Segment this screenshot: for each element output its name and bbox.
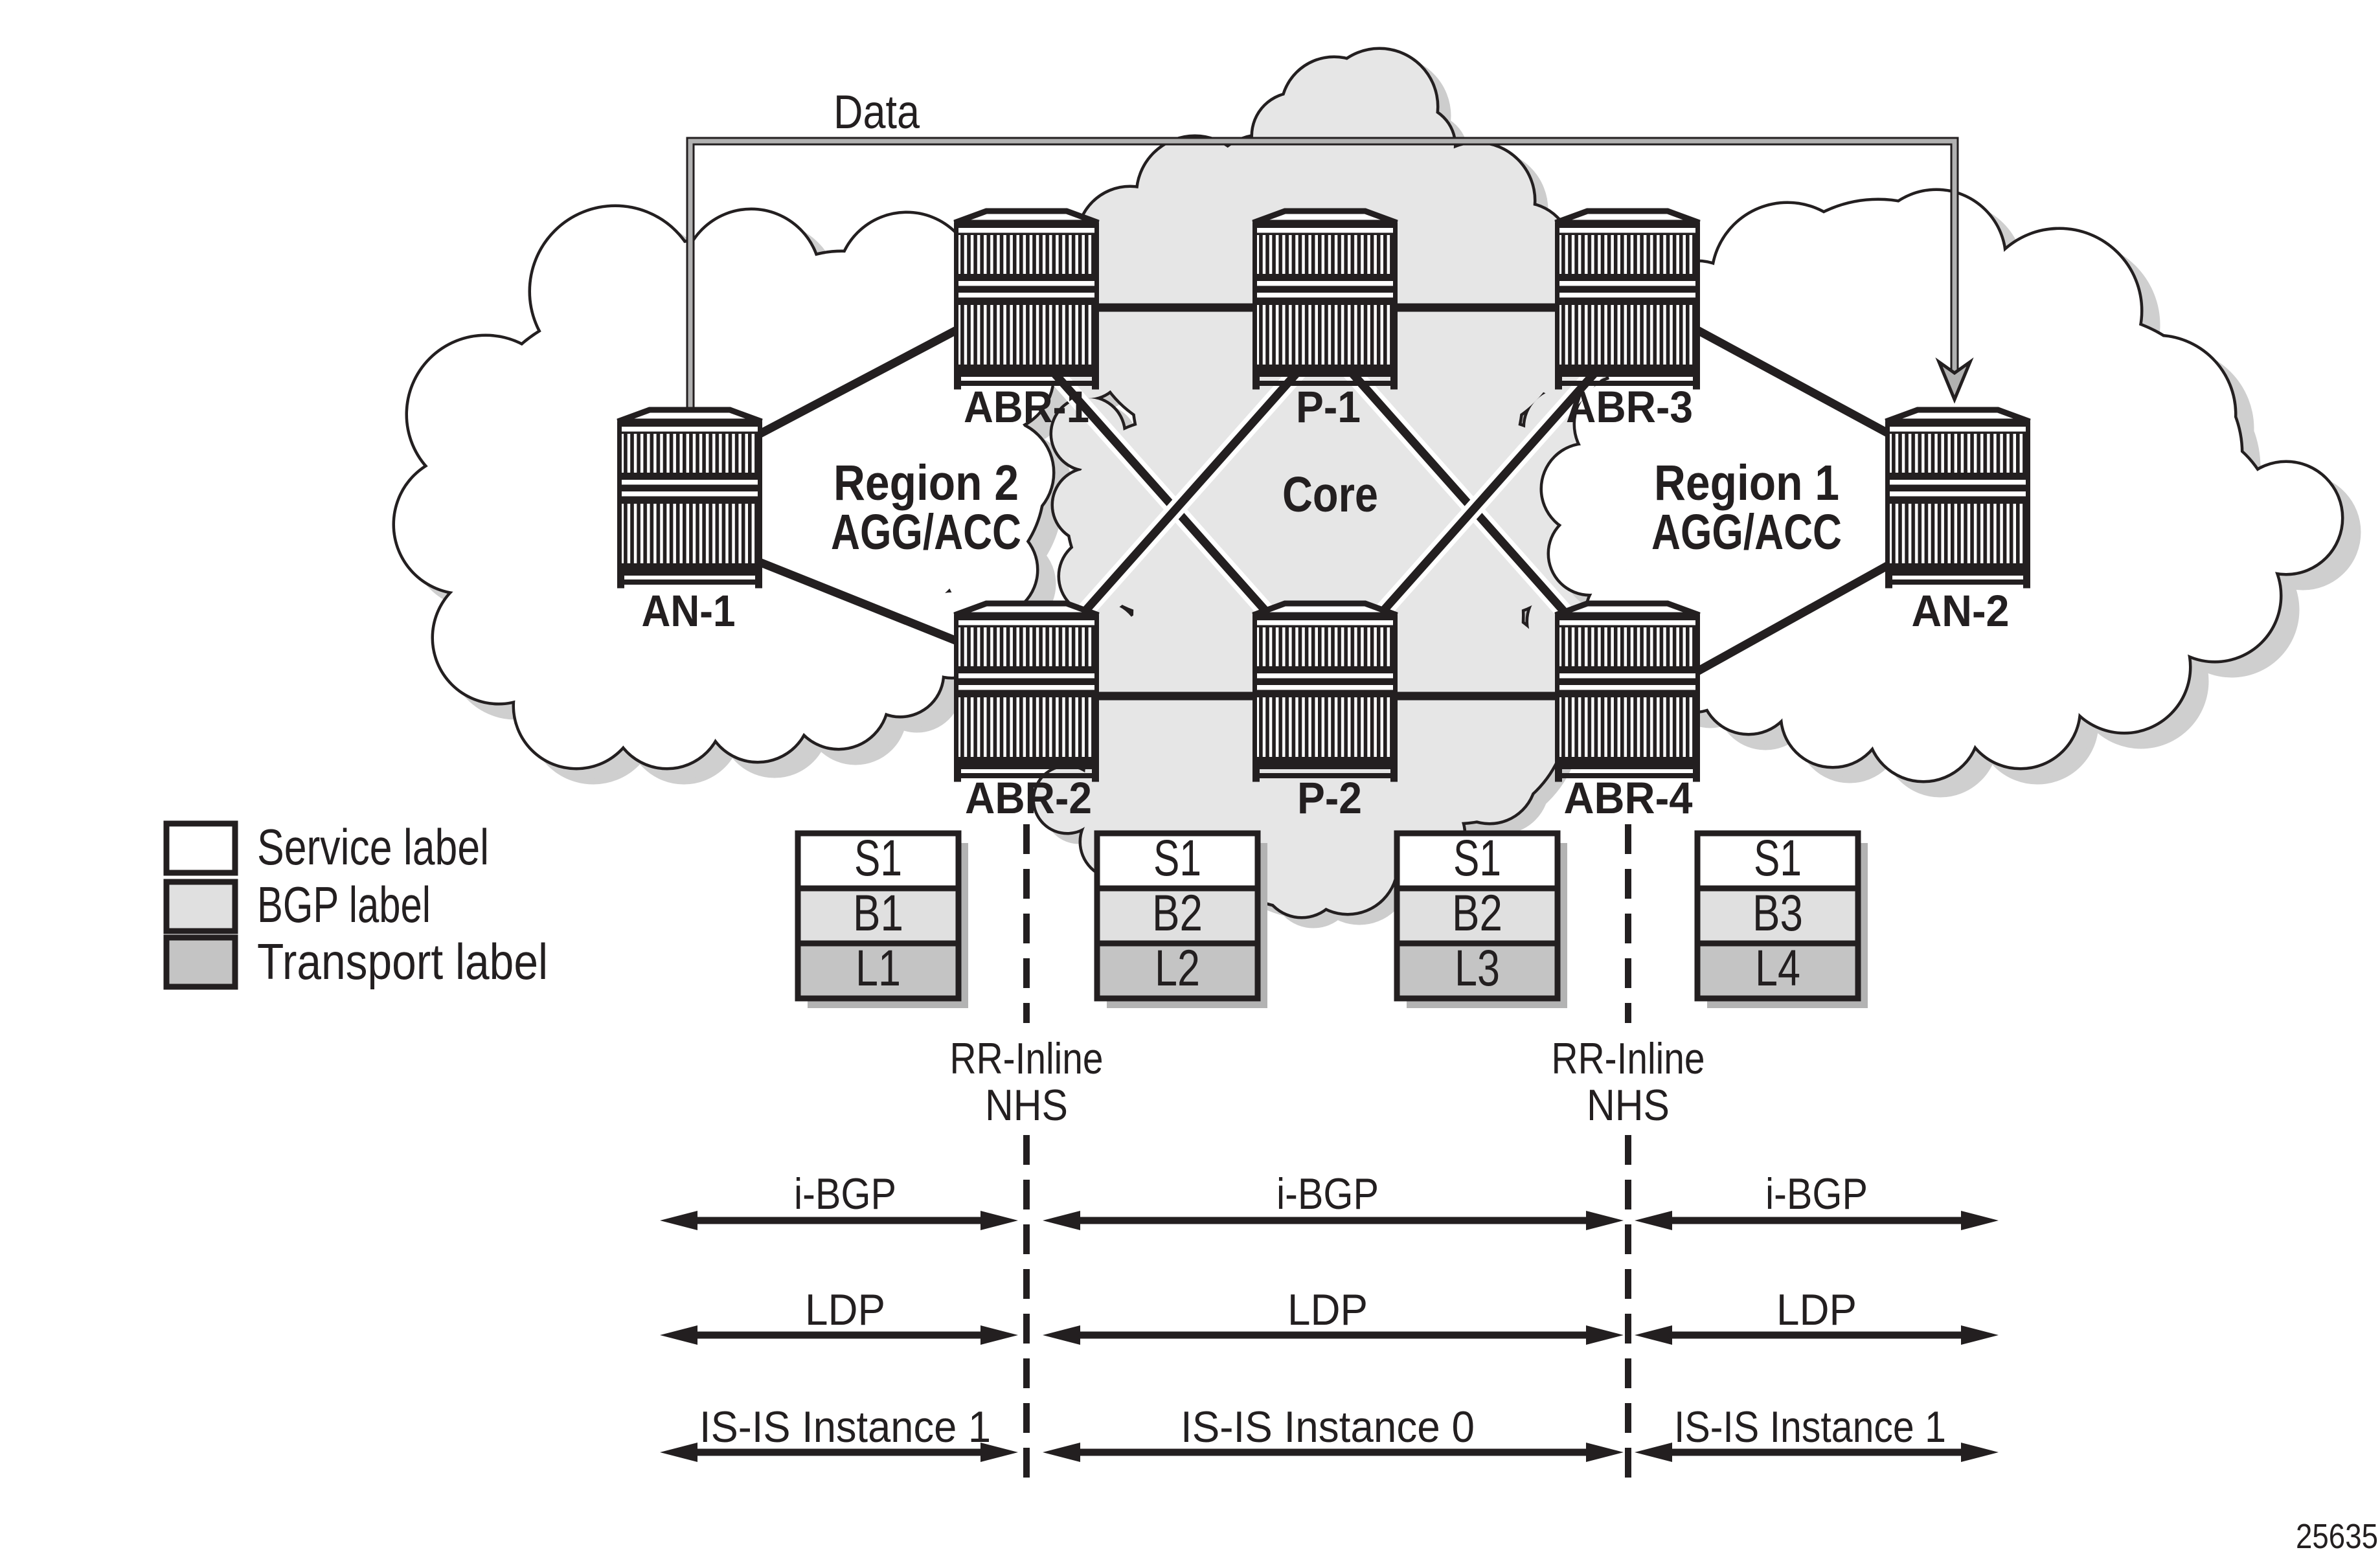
svg-text:P-2: P-2 xyxy=(1297,773,1362,823)
svg-text:i-BGP: i-BGP xyxy=(1765,1169,1868,1219)
svg-text:LDP: LDP xyxy=(805,1285,885,1334)
svg-text:NHS: NHS xyxy=(1587,1081,1670,1130)
svg-text:L3: L3 xyxy=(1455,939,1500,996)
svg-text:Region 1: Region 1 xyxy=(1654,455,1839,511)
svg-text:S1: S1 xyxy=(1453,829,1501,886)
svg-text:B2: B2 xyxy=(1452,884,1502,941)
svg-text:S1: S1 xyxy=(854,829,902,886)
svg-text:L2: L2 xyxy=(1155,939,1200,996)
svg-text:LDP: LDP xyxy=(1287,1285,1368,1334)
svg-text:P-1: P-1 xyxy=(1296,382,1361,432)
svg-text:RR-Inline: RR-Inline xyxy=(950,1034,1104,1083)
svg-text:IS-IS Instance 1: IS-IS Instance 1 xyxy=(1674,1402,1946,1452)
svg-text:L1: L1 xyxy=(856,939,901,996)
svg-text:AN-1: AN-1 xyxy=(642,586,736,636)
svg-text:i-BGP: i-BGP xyxy=(1276,1169,1379,1219)
svg-text:B3: B3 xyxy=(1752,884,1803,941)
svg-text:ABR-4: ABR-4 xyxy=(1564,773,1693,823)
svg-text:ABR-2: ABR-2 xyxy=(965,773,1092,823)
svg-text:S1: S1 xyxy=(1153,829,1201,886)
svg-text:Region 2: Region 2 xyxy=(833,455,1019,511)
svg-text:Core: Core xyxy=(1282,467,1378,523)
svg-text:Service label: Service label xyxy=(257,818,489,875)
svg-text:ABR-3: ABR-3 xyxy=(1566,382,1693,432)
svg-text:Data: Data xyxy=(833,86,920,139)
svg-text:ABR-1: ABR-1 xyxy=(964,382,1089,432)
svg-text:B2: B2 xyxy=(1152,884,1203,941)
svg-text:i-BGP: i-BGP xyxy=(794,1169,896,1219)
svg-text:IS-IS Instance 0: IS-IS Instance 0 xyxy=(1181,1402,1475,1452)
svg-text:AN-2: AN-2 xyxy=(1912,586,2010,636)
svg-text:B1: B1 xyxy=(853,884,903,941)
svg-text:LDP: LDP xyxy=(1776,1285,1857,1334)
svg-text:BGP label: BGP label xyxy=(257,876,431,933)
svg-text:NHS: NHS xyxy=(985,1081,1068,1130)
svg-text:IS-IS Instance 1: IS-IS Instance 1 xyxy=(699,1402,991,1452)
svg-text:AGG/ACC: AGG/ACC xyxy=(831,504,1021,560)
svg-text:RR-Inline: RR-Inline xyxy=(1552,1034,1705,1083)
svg-text:L4: L4 xyxy=(1755,939,1800,996)
svg-text:Transport label: Transport label xyxy=(257,933,548,990)
svg-text:AGG/ACC: AGG/ACC xyxy=(1651,504,1842,560)
svg-text:S1: S1 xyxy=(1754,829,1802,886)
svg-text:25635: 25635 xyxy=(2296,1517,2378,1552)
